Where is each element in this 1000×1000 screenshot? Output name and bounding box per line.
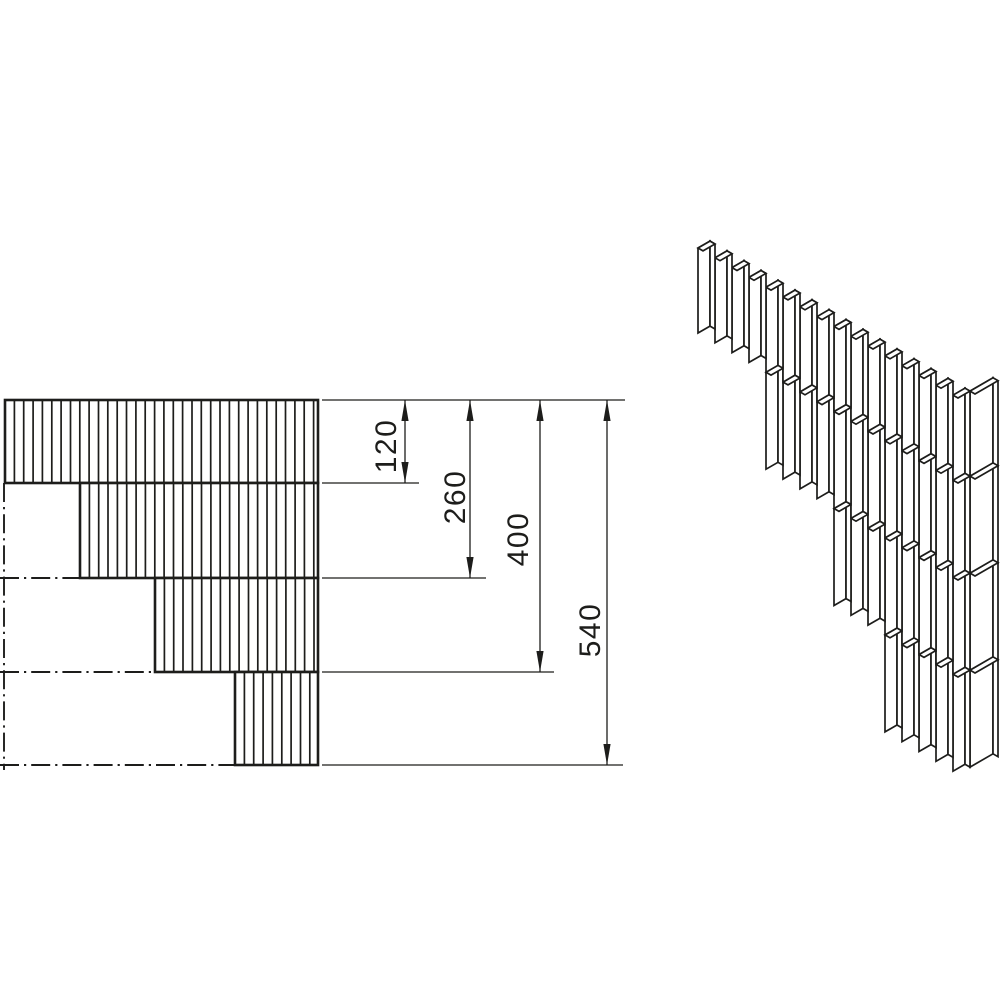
slat-side-face bbox=[800, 300, 812, 392]
slat-front-face bbox=[965, 667, 970, 767]
arrowhead-up bbox=[536, 400, 543, 421]
slat-side-face bbox=[953, 388, 965, 480]
slat-side-face bbox=[885, 349, 897, 441]
slat-side-face bbox=[919, 369, 931, 461]
isometric-view bbox=[698, 241, 998, 771]
plan-course-rect bbox=[155, 578, 318, 672]
dimensions bbox=[322, 400, 625, 765]
wall-end-face bbox=[970, 657, 993, 767]
wall-end-edge-face bbox=[993, 560, 998, 660]
slat-front-face bbox=[931, 369, 936, 457]
wall-end-edge-face bbox=[993, 463, 998, 563]
slat-side-face bbox=[851, 329, 863, 421]
slat-front-face bbox=[710, 241, 715, 329]
technical-drawing-svg bbox=[0, 0, 1000, 1000]
slat-front-face bbox=[795, 290, 800, 378]
dimension-label-260: 260 bbox=[442, 467, 470, 527]
slat-front-face bbox=[744, 261, 749, 349]
technical-drawing-canvas: 120 260 400 540 bbox=[0, 0, 1000, 1000]
slat-side-face bbox=[885, 628, 897, 732]
slat-front-face bbox=[863, 329, 868, 417]
slat-side-face bbox=[936, 560, 948, 664]
slat-side-face bbox=[851, 414, 863, 518]
slat-side-face bbox=[936, 657, 948, 761]
arrowhead-up bbox=[603, 400, 610, 421]
slat-side-face bbox=[766, 365, 778, 469]
dimension-label-120: 120 bbox=[373, 416, 401, 476]
slat-side-face bbox=[885, 531, 897, 635]
slat-side-face bbox=[817, 310, 829, 402]
slat-side-face bbox=[953, 473, 965, 577]
dimension-label-400: 400 bbox=[505, 509, 533, 569]
slat-side-face bbox=[834, 502, 846, 606]
slat-side-face bbox=[732, 261, 744, 353]
slat-front-face bbox=[778, 280, 783, 368]
slat-side-face bbox=[851, 511, 863, 615]
slat-side-face bbox=[817, 395, 829, 499]
arrowhead-down bbox=[603, 744, 610, 765]
arrowhead-down bbox=[536, 651, 543, 672]
slat-side-face bbox=[902, 638, 914, 742]
slat-side-face bbox=[834, 320, 846, 412]
arrowhead-up bbox=[401, 400, 408, 421]
slat-front-face bbox=[965, 570, 970, 670]
slat-front-face bbox=[965, 473, 970, 573]
plan-course-rect bbox=[80, 483, 318, 578]
slat-front-face bbox=[829, 310, 834, 398]
plan-view bbox=[5, 400, 318, 765]
slat-side-face bbox=[800, 385, 812, 489]
wall-end-face bbox=[970, 463, 993, 573]
arrowhead-up bbox=[466, 400, 473, 421]
slat-front-face bbox=[880, 339, 885, 427]
slat-front-face bbox=[965, 388, 970, 476]
slat-front-face bbox=[948, 378, 953, 466]
slat-side-face bbox=[783, 290, 795, 382]
slat-side-face bbox=[936, 463, 948, 567]
plan-course-rect bbox=[235, 672, 318, 765]
slat-side-face bbox=[936, 378, 948, 470]
slat-front-face bbox=[897, 349, 902, 437]
dimension-label-540: 540 bbox=[577, 600, 605, 660]
slat-side-face bbox=[953, 570, 965, 674]
slat-side-face bbox=[766, 280, 778, 372]
slat-side-face bbox=[698, 241, 710, 333]
arrowhead-down bbox=[466, 557, 473, 578]
wall-end-edge-face bbox=[993, 657, 998, 757]
slat-front-face bbox=[761, 271, 766, 359]
slat-front-face bbox=[727, 251, 732, 339]
wall-end-face bbox=[970, 560, 993, 670]
slat-side-face bbox=[868, 521, 880, 625]
slat-side-face bbox=[868, 424, 880, 528]
slat-side-face bbox=[919, 454, 931, 558]
slat-front-face bbox=[846, 320, 851, 408]
slat-side-face bbox=[715, 251, 727, 343]
slat-side-face bbox=[902, 444, 914, 548]
slat-side-face bbox=[953, 667, 965, 771]
slat-side-face bbox=[919, 648, 931, 752]
slat-side-face bbox=[902, 359, 914, 451]
slat-side-face bbox=[749, 271, 761, 363]
slat-side-face bbox=[885, 434, 897, 538]
slat-side-face bbox=[783, 375, 795, 479]
slat-side-face bbox=[834, 405, 846, 509]
wall-end-edge-face bbox=[993, 378, 998, 466]
slat-side-face bbox=[902, 541, 914, 645]
slat-side-face bbox=[868, 339, 880, 431]
slat-front-face bbox=[812, 300, 817, 388]
slat-side-face bbox=[919, 551, 931, 655]
slat-front-face bbox=[914, 359, 919, 447]
